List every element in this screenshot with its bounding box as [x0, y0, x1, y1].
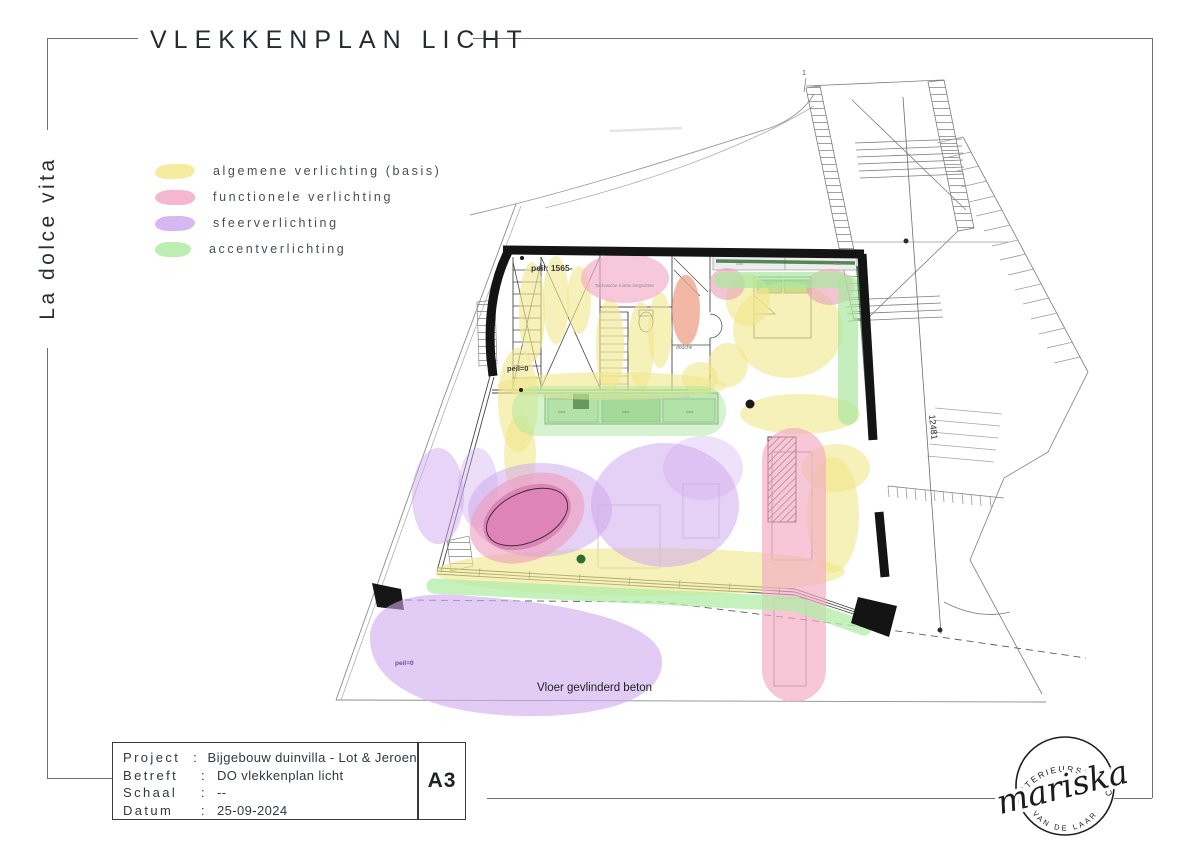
info-value: DO vlekkenplan licht	[217, 767, 344, 785]
info-row-datum: Datum : 25-09-2024	[123, 802, 417, 820]
info-row-project: Project : Bijgebouw duinvilla - Lot & Je…	[123, 749, 417, 767]
info-label: Project	[123, 749, 193, 767]
sheet: { "title": "VLEKKENPLAN LICHT", "side_te…	[0, 0, 1200, 848]
kast-label: kast	[622, 409, 630, 414]
info-value: Bijgebouw duinvilla - Lot & Jeroen	[208, 749, 417, 767]
marker-one-label: 1	[802, 70, 806, 77]
peil-zero-label: peil=0	[507, 364, 528, 373]
paper-size-badge: A3	[418, 742, 466, 820]
info-value: 25-09-2024	[217, 802, 288, 820]
title-block: Project : Bijgebouw duinvilla - Lot & Je…	[112, 742, 418, 820]
info-separator: :	[201, 767, 217, 785]
info-label: Datum	[123, 802, 201, 820]
info-value: --	[217, 784, 226, 802]
floor-note: Vloer gevlinderd beton	[537, 682, 652, 694]
info-separator: :	[201, 802, 217, 820]
kast-label: kast	[686, 409, 694, 414]
logo-name: mariska	[995, 752, 1132, 822]
info-row-schaal: Schaal : --	[123, 784, 417, 802]
info-row-betreft: Betreft : DO vlekkenplan licht	[123, 767, 417, 785]
studio-logo: INTERIEURSTUDIO VAN DE LAAR mariska	[995, 714, 1135, 858]
info-label: Betreft	[123, 767, 201, 785]
dimension-label: 12481	[927, 414, 940, 440]
kast-label: kast	[558, 409, 566, 414]
info-separator: :	[201, 784, 217, 802]
info-label: Schaal	[123, 784, 201, 802]
info-separator: :	[193, 749, 207, 767]
tech-room-label: Technische ruimte bergruimte	[595, 283, 655, 288]
peil-zero-terrace-label: peil=0	[395, 660, 414, 667]
peil-upper-label: peil: 1565-	[531, 263, 573, 273]
kast-label: kast	[736, 261, 744, 266]
douche-label: douche	[676, 345, 693, 351]
kast-label: kast	[834, 261, 842, 266]
